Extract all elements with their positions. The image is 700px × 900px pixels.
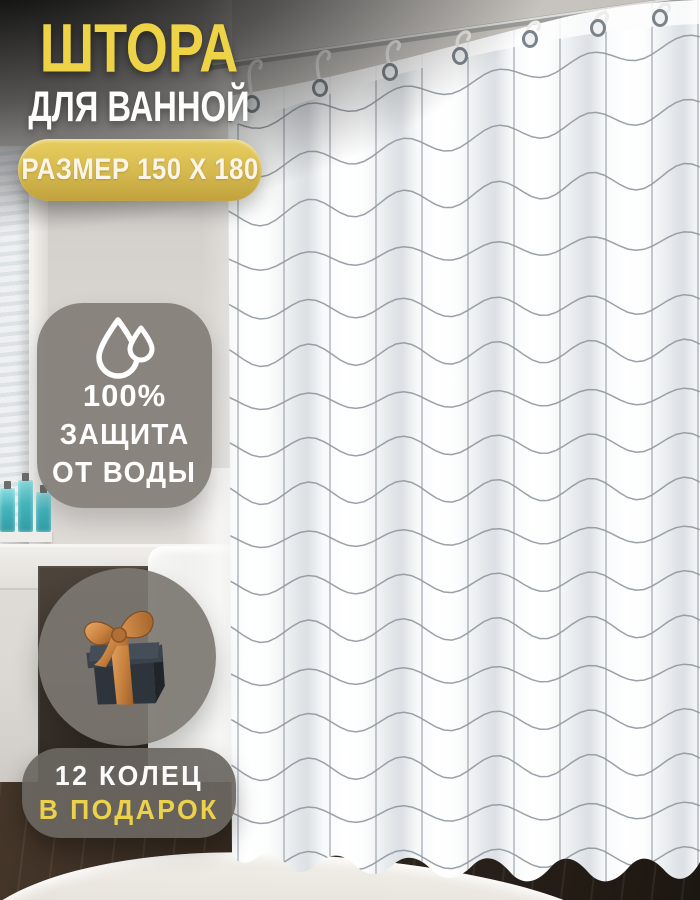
gift-badge-line1: 12 КОЛЕЦ (55, 760, 203, 792)
waterproof-badge: 100% ЗАЩИТА ОТ ВОДЫ (37, 303, 212, 508)
product-image: ШТОРА ДЛЯ ВАННОЙ РАЗМЕР 150 Х 180 100% З… (0, 0, 700, 900)
waterproof-line1: ЗАЩИТА (60, 419, 190, 452)
curtain-fabric (228, 0, 700, 881)
gift-circle-badge (38, 568, 216, 746)
gift-badge-line2: В ПОДАРОК (39, 794, 219, 826)
water-drops-icon (92, 316, 158, 380)
waterproof-line2: ОТ ВОДЫ (52, 457, 196, 490)
waterproof-percent: 100% (83, 378, 166, 414)
size-badge: РАЗМЕР 150 Х 180 (18, 139, 262, 201)
gift-box-icon (61, 591, 193, 723)
product-title: ШТОРА (25, 8, 253, 87)
gift-badge: 12 КОЛЕЦ В ПОДАРОК (22, 748, 236, 838)
size-badge-label: РАЗМЕР 150 Х 180 (21, 153, 258, 187)
product-subtitle: ДЛЯ ВАННОЙ (28, 82, 250, 131)
